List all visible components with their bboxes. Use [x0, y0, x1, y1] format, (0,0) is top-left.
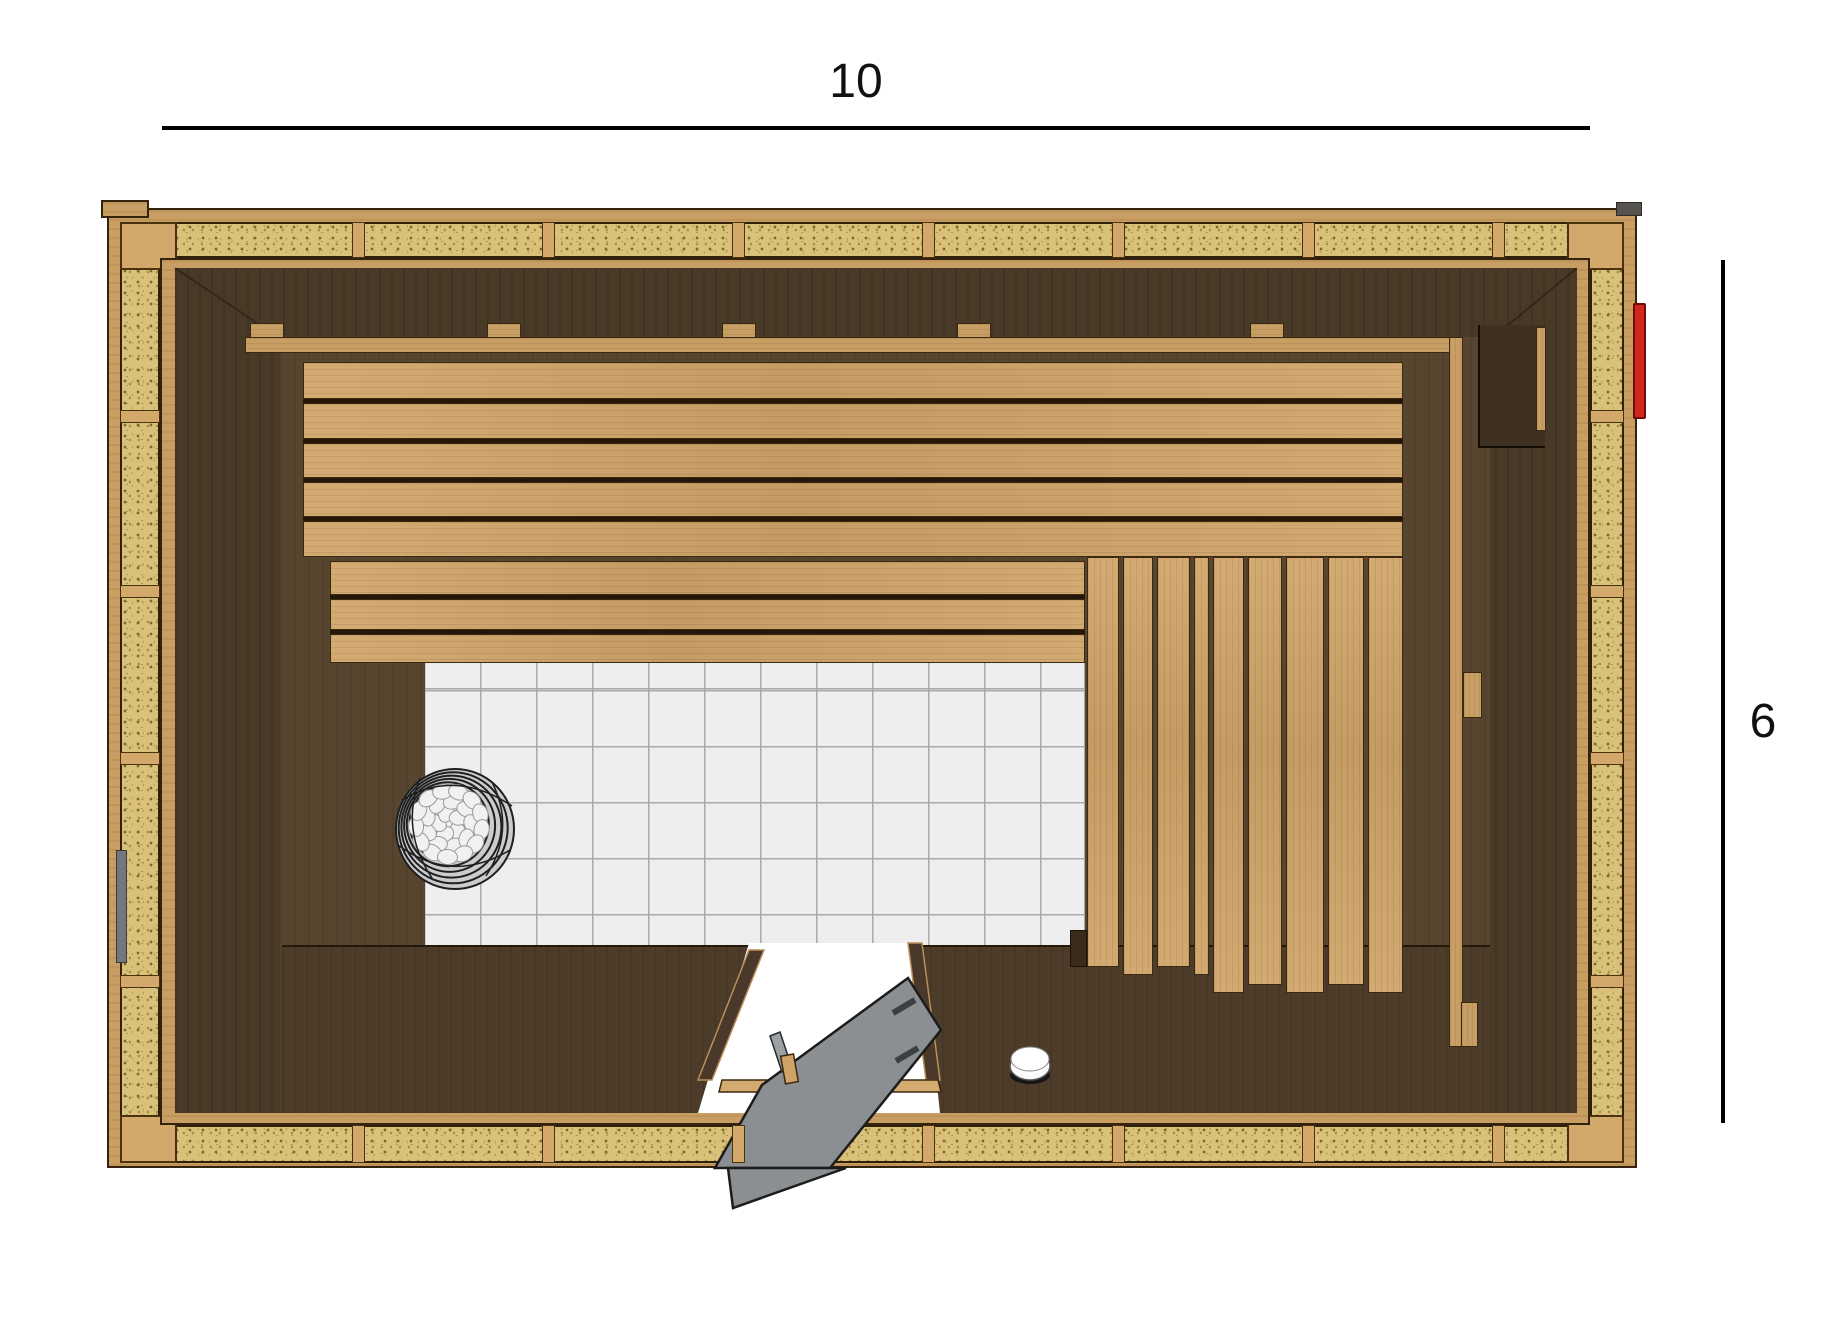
backrest-rail-top	[245, 337, 1463, 353]
backrest-rail-right	[1449, 337, 1463, 1047]
lower-bench-frame	[330, 561, 1085, 663]
rail-handle-block	[1463, 672, 1482, 718]
exterior-vent-left	[116, 850, 127, 963]
doorway	[698, 943, 941, 1208]
wall-panel-top-right	[1478, 325, 1545, 448]
water-cup	[1010, 1047, 1050, 1084]
rail-foot-block	[1461, 1002, 1478, 1047]
door-leaf-outside	[728, 1168, 846, 1208]
exterior-red-fitting	[1633, 303, 1646, 419]
plan-detail-layer	[0, 0, 1837, 1331]
sauna-heater	[396, 769, 514, 889]
wall-panel-trim	[1536, 327, 1546, 431]
miter-line-top-left	[175, 268, 282, 340]
sauna-floor-plan: 10 6	[0, 0, 1837, 1331]
upper-bench-frame	[303, 362, 1403, 557]
